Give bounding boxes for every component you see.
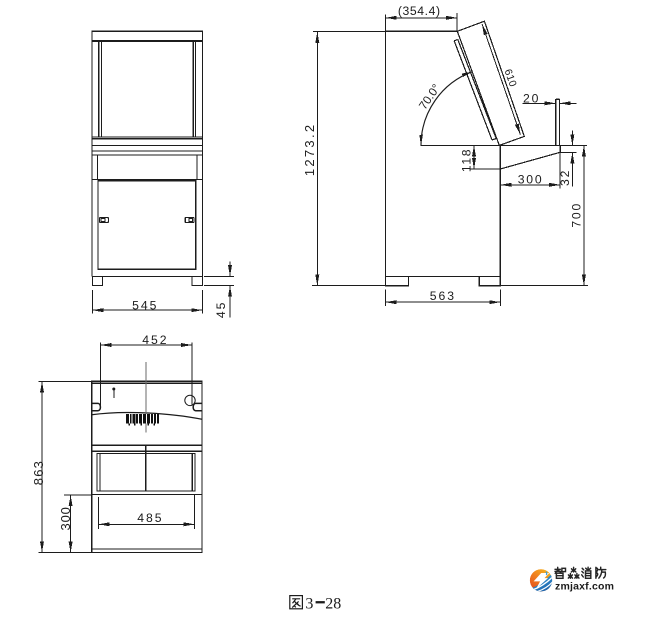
svg-text:20: 20 <box>523 92 540 106</box>
svg-text:45: 45 <box>214 301 228 319</box>
svg-text:32: 32 <box>558 169 572 186</box>
svg-text:70.0°: 70.0° <box>416 81 444 112</box>
svg-text:485: 485 <box>137 511 163 525</box>
svg-text:3: 3 <box>305 596 313 613</box>
svg-text:452: 452 <box>142 333 168 347</box>
svg-text:700: 700 <box>569 202 583 228</box>
svg-text:545: 545 <box>132 299 158 313</box>
svg-text:300: 300 <box>58 506 73 530</box>
svg-text:28: 28 <box>325 596 341 613</box>
svg-text:610: 610 <box>502 68 518 89</box>
svg-text:300: 300 <box>518 172 544 186</box>
svg-text:zmjaxf.com: zmjaxf.com <box>555 581 614 593</box>
svg-text:1273.2: 1273.2 <box>302 123 317 177</box>
svg-text:563: 563 <box>430 289 456 303</box>
svg-text:118: 118 <box>459 148 473 172</box>
svg-text:863: 863 <box>31 460 46 485</box>
svg-text:(354.4): (354.4) <box>398 4 441 18</box>
